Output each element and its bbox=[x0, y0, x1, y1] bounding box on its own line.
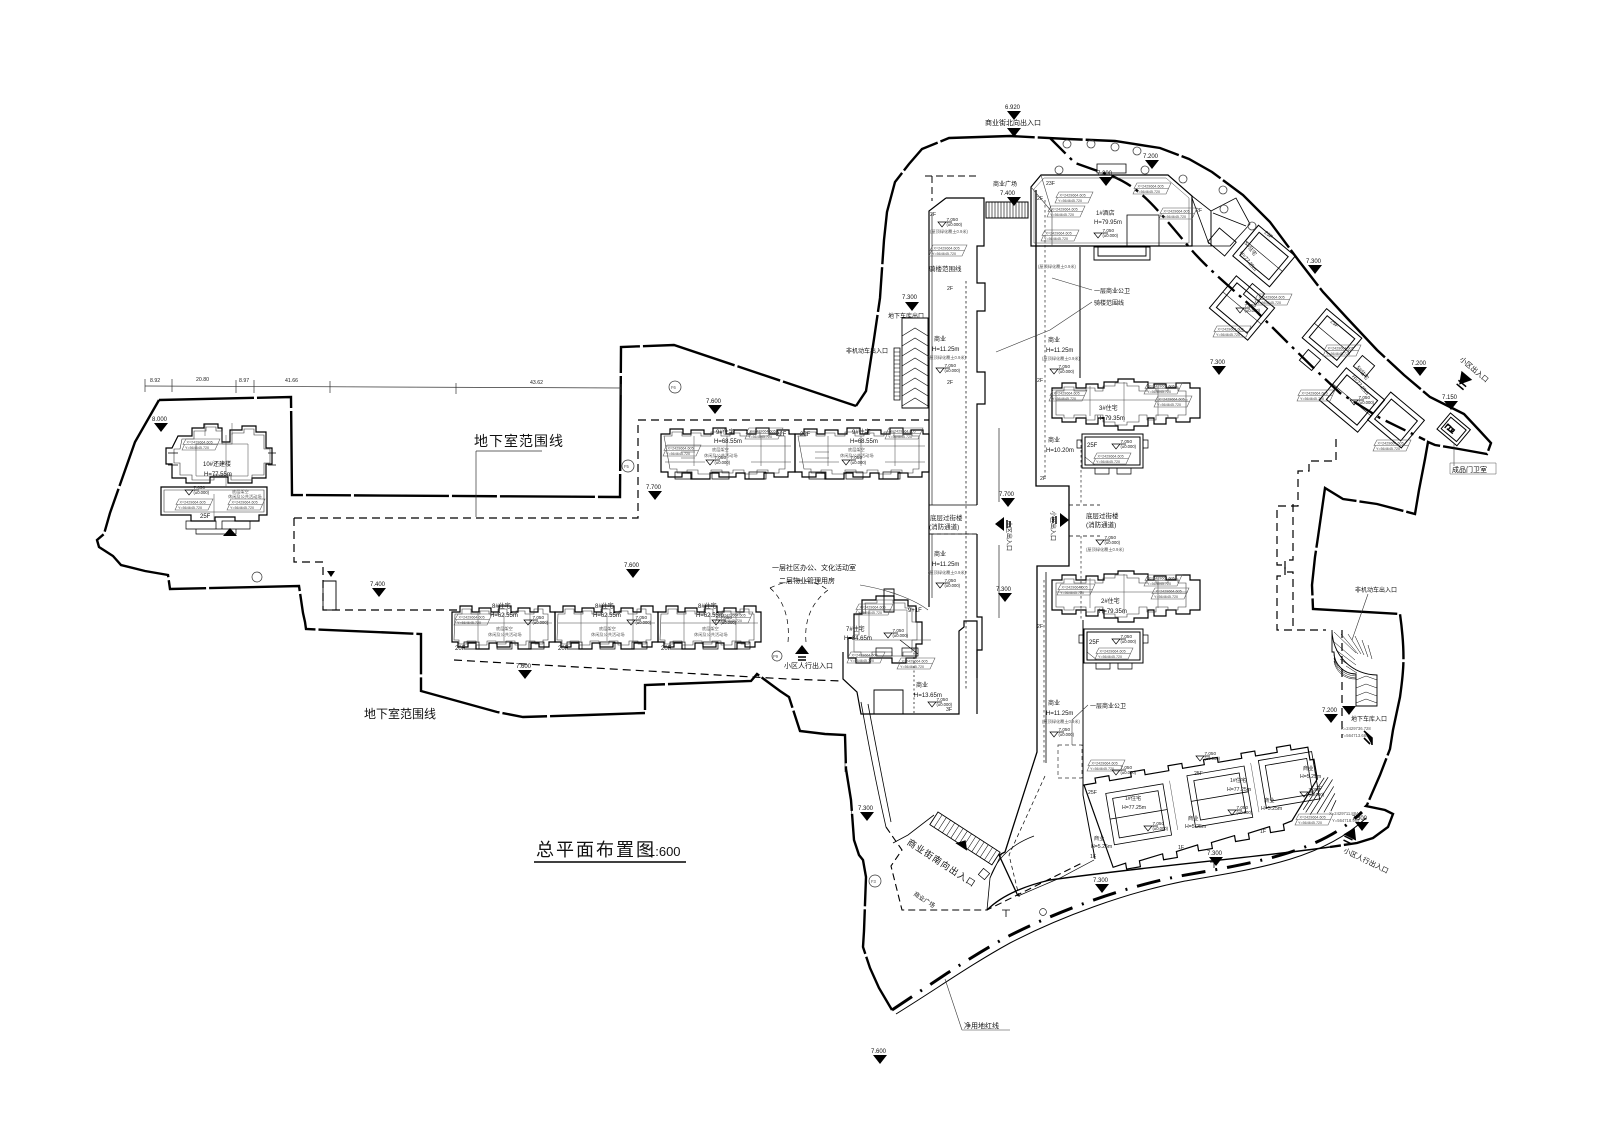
svg-text:总平面布置图: 总平面布置图 bbox=[536, 840, 656, 860]
svg-text:小区人行出入口: 小区人行出入口 bbox=[784, 661, 833, 670]
svg-text:H=34.65m: H=34.65m bbox=[844, 636, 872, 642]
svg-text:小区出入口: 小区出入口 bbox=[1049, 511, 1057, 541]
svg-text:骑楼范围线: 骑楼范围线 bbox=[1094, 299, 1124, 307]
svg-text:Y=564718.965: Y=564718.965 bbox=[1332, 818, 1360, 823]
svg-text:7.300: 7.300 bbox=[996, 587, 1012, 593]
svg-text:7.400: 7.400 bbox=[1000, 191, 1016, 197]
svg-text:7.200: 7.200 bbox=[1411, 361, 1427, 367]
svg-text:商业: 商业 bbox=[1048, 336, 1060, 344]
svg-text:(屋顶绿化覆土0.9米): (屋顶绿化覆土0.9米) bbox=[930, 228, 969, 235]
svg-text:H=11.25m: H=11.25m bbox=[932, 347, 959, 353]
svg-text:底层过街楼: 底层过街楼 bbox=[1086, 511, 1119, 520]
svg-text:商业: 商业 bbox=[1303, 764, 1313, 772]
svg-text:H=11.25m: H=11.25m bbox=[1046, 711, 1073, 717]
svg-text:25F: 25F bbox=[1087, 443, 1098, 449]
svg-text:7.200: 7.200 bbox=[1097, 171, 1113, 177]
svg-text:7.700: 7.700 bbox=[999, 492, 1015, 498]
svg-text:休闲及公共活动场: 休闲及公共活动场 bbox=[591, 631, 625, 638]
svg-text:一层商业公卫: 一层商业公卫 bbox=[1090, 702, 1126, 710]
svg-text:(屋顶绿化覆土0.9米): (屋顶绿化覆土0.9米) bbox=[928, 354, 967, 361]
svg-text:1F: 1F bbox=[1090, 854, 1096, 860]
svg-text:22F: 22F bbox=[776, 432, 787, 438]
svg-text:H=79.95m: H=79.95m bbox=[1094, 220, 1122, 226]
svg-text:H=10.20m: H=10.20m bbox=[1046, 448, 1074, 454]
svg-text:2F: 2F bbox=[1037, 196, 1043, 202]
svg-text:F5: F5 bbox=[624, 464, 630, 469]
svg-text:7.700: 7.700 bbox=[646, 485, 662, 491]
svg-text:9+1F: 9+1F bbox=[908, 608, 922, 614]
svg-text:(屋顶绿化覆土0.9米): (屋顶绿化覆土0.9米) bbox=[1086, 546, 1125, 553]
svg-text:商业: 商业 bbox=[1048, 436, 1060, 444]
svg-text:23F: 23F bbox=[1046, 181, 1055, 187]
svg-text:底层架空: 底层架空 bbox=[599, 625, 616, 632]
svg-text:6.920: 6.920 bbox=[1005, 105, 1021, 111]
svg-text:底层架空: 底层架空 bbox=[712, 446, 729, 453]
svg-text:8.000: 8.000 bbox=[152, 417, 168, 423]
svg-text:(屋顶绿化覆土0.9米): (屋顶绿化覆土0.9米) bbox=[1038, 263, 1077, 270]
svg-text:25F: 25F bbox=[200, 514, 211, 520]
svg-text:7#住宅: 7#住宅 bbox=[846, 625, 865, 633]
svg-text:7.300: 7.300 bbox=[1093, 878, 1109, 884]
svg-text:X=2429711.884: X=2429711.884 bbox=[1329, 811, 1359, 816]
svg-text:商业: 商业 bbox=[1048, 699, 1060, 707]
svg-text:7.600: 7.600 bbox=[706, 399, 722, 405]
svg-text:小区出入口: 小区出入口 bbox=[1005, 521, 1013, 551]
svg-text:8.97: 8.97 bbox=[239, 378, 249, 384]
svg-text:7.400: 7.400 bbox=[370, 582, 386, 588]
svg-text:20F: 20F bbox=[455, 646, 466, 652]
svg-text:25F: 25F bbox=[1089, 640, 1100, 646]
svg-text:H=77.55m: H=77.55m bbox=[204, 472, 232, 478]
svg-text:H=62.55m: H=62.55m bbox=[593, 613, 621, 619]
svg-text:(消防通道): (消防通道) bbox=[1086, 520, 1116, 529]
svg-text:底层架空: 底层架空 bbox=[496, 625, 513, 632]
svg-text:1:600: 1:600 bbox=[648, 844, 681, 859]
svg-text:1#住宅: 1#住宅 bbox=[1125, 794, 1141, 802]
svg-text:H=68.55m: H=68.55m bbox=[714, 439, 742, 445]
svg-text:商业: 商业 bbox=[934, 550, 946, 558]
svg-text:1F: 1F bbox=[1178, 845, 1184, 851]
svg-text:22F: 22F bbox=[800, 432, 811, 438]
svg-text:非机动车出入口: 非机动车出入口 bbox=[1355, 586, 1397, 594]
svg-text:2F: 2F bbox=[1040, 476, 1046, 482]
svg-text:净用地红线: 净用地红线 bbox=[964, 1021, 999, 1030]
svg-text:H=77.25m: H=77.25m bbox=[1122, 805, 1146, 811]
svg-text:7.600: 7.600 bbox=[871, 1049, 887, 1055]
svg-text:Y=564713.684: Y=564713.684 bbox=[1341, 733, 1369, 738]
svg-text:(屋顶绿化覆土0.9米): (屋顶绿化覆土0.9米) bbox=[1042, 355, 1081, 362]
svg-text:商业: 商业 bbox=[1264, 796, 1274, 804]
svg-text:骑楼范围线: 骑楼范围线 bbox=[929, 264, 962, 273]
svg-text:底层架空: 底层架空 bbox=[848, 446, 865, 453]
svg-text:43.62: 43.62 bbox=[530, 380, 543, 386]
svg-text:H=79.35m: H=79.35m bbox=[1097, 416, 1125, 422]
svg-text:H=5.25m: H=5.25m bbox=[1091, 844, 1112, 850]
svg-text:地下室范围线: 地下室范围线 bbox=[364, 706, 436, 721]
svg-text:8#住宅: 8#住宅 bbox=[492, 602, 511, 610]
svg-text:7.300: 7.300 bbox=[1207, 851, 1223, 857]
svg-text:8#住宅: 8#住宅 bbox=[595, 602, 614, 610]
svg-text:9#住宅: 9#住宅 bbox=[716, 428, 735, 436]
svg-text:3F: 3F bbox=[946, 707, 952, 713]
svg-text:25F: 25F bbox=[1194, 771, 1203, 777]
svg-text:(消防通道): (消防通道) bbox=[929, 522, 959, 531]
svg-text:2#住宅: 2#住宅 bbox=[1101, 597, 1120, 605]
svg-text:10#还建楼: 10#还建楼 bbox=[203, 460, 231, 468]
svg-text:非机动车出入口: 非机动车出入口 bbox=[846, 347, 888, 355]
svg-text:2F: 2F bbox=[930, 212, 936, 218]
svg-text:41.66: 41.66 bbox=[285, 378, 298, 384]
svg-text:商业: 商业 bbox=[934, 335, 946, 343]
svg-text:H=11.25m: H=11.25m bbox=[1046, 348, 1073, 354]
svg-text:商业街北向出入口: 商业街北向出入口 bbox=[985, 118, 1041, 127]
svg-text:休闲及公共活动场: 休闲及公共活动场 bbox=[694, 631, 728, 638]
svg-text:2F: 2F bbox=[1037, 378, 1043, 384]
svg-text:H=5.25m: H=5.25m bbox=[1261, 806, 1282, 812]
svg-text:商业: 商业 bbox=[916, 681, 928, 689]
svg-text:H=11.25m: H=11.25m bbox=[932, 562, 959, 568]
svg-text:底层架空: 底层架空 bbox=[702, 625, 719, 632]
svg-text:25F: 25F bbox=[1088, 790, 1097, 796]
svg-text:1#住宅: 1#住宅 bbox=[1230, 776, 1246, 784]
svg-text:20F: 20F bbox=[661, 646, 672, 652]
svg-text:7.200: 7.200 bbox=[1143, 154, 1159, 160]
svg-text:H=68.55m: H=68.55m bbox=[850, 439, 878, 445]
svg-text:7.150: 7.150 bbox=[1442, 395, 1458, 401]
svg-text:3#住宅: 3#住宅 bbox=[1099, 404, 1118, 412]
svg-text:H=79.35m: H=79.35m bbox=[1099, 609, 1127, 615]
svg-text:F6: F6 bbox=[671, 385, 677, 390]
svg-text:商业广场: 商业广场 bbox=[993, 180, 1017, 188]
svg-text:商业: 商业 bbox=[1094, 834, 1104, 842]
svg-text:H=5.25m: H=5.25m bbox=[1300, 774, 1321, 780]
svg-text:7.200: 7.200 bbox=[1322, 708, 1338, 714]
svg-text:休闲及公共活动场: 休闲及公共活动场 bbox=[228, 493, 262, 500]
svg-text:7.300: 7.300 bbox=[1306, 259, 1322, 265]
svg-text:商业: 商业 bbox=[1188, 814, 1198, 822]
svg-text:20F: 20F bbox=[558, 646, 569, 652]
svg-text:成品门卫室: 成品门卫室 bbox=[1452, 465, 1487, 474]
svg-text:地下车库入口: 地下车库入口 bbox=[1351, 715, 1387, 723]
svg-text:休闲及公共活动场: 休闲及公共活动场 bbox=[488, 631, 522, 638]
svg-text:P9: P9 bbox=[773, 654, 779, 659]
svg-text:7.600: 7.600 bbox=[624, 563, 640, 569]
svg-text:1F: 1F bbox=[1260, 829, 1266, 835]
svg-text:(屋顶绿化覆土0.9米): (屋顶绿化覆土0.9米) bbox=[1042, 718, 1081, 725]
svg-text:2F: 2F bbox=[947, 380, 953, 386]
svg-text:H=62.55m: H=62.55m bbox=[490, 613, 518, 619]
svg-text:1#酒店: 1#酒店 bbox=[1096, 209, 1115, 217]
svg-text:2F: 2F bbox=[947, 286, 953, 292]
svg-text:7.300: 7.300 bbox=[902, 295, 918, 301]
svg-text:7.600: 7.600 bbox=[516, 664, 532, 670]
svg-text:底层过街楼: 底层过街楼 bbox=[930, 513, 963, 522]
svg-text:一层社区办公、文化活动室: 一层社区办公、文化活动室 bbox=[772, 563, 856, 572]
svg-text:7.300: 7.300 bbox=[1210, 360, 1226, 366]
svg-text:8#住宅: 8#住宅 bbox=[698, 602, 717, 610]
svg-text:20.80: 20.80 bbox=[196, 377, 209, 383]
svg-text:9#住宅: 9#住宅 bbox=[852, 428, 871, 436]
svg-text:2F: 2F bbox=[1196, 208, 1202, 214]
svg-text:(屋顶绿化覆土0.9米): (屋顶绿化覆土0.9米) bbox=[928, 569, 967, 576]
svg-text:7.300: 7.300 bbox=[858, 806, 874, 812]
svg-text:二层物业管理用房: 二层物业管理用房 bbox=[779, 576, 835, 585]
svg-text:地下室范围线: 地下室范围线 bbox=[474, 433, 564, 449]
svg-text:H=77.25m: H=77.25m bbox=[1227, 787, 1251, 793]
svg-text:地下车库出口: 地下车库出口 bbox=[888, 312, 924, 320]
svg-text:8.92: 8.92 bbox=[150, 378, 160, 384]
svg-text:X=2429736.728: X=2429736.728 bbox=[1341, 726, 1371, 731]
svg-text:一层商业公卫: 一层商业公卫 bbox=[1094, 287, 1130, 295]
svg-text:F3: F3 bbox=[871, 879, 877, 884]
svg-text:H=5.25m: H=5.25m bbox=[1185, 824, 1206, 830]
svg-text:2F: 2F bbox=[1037, 624, 1043, 630]
